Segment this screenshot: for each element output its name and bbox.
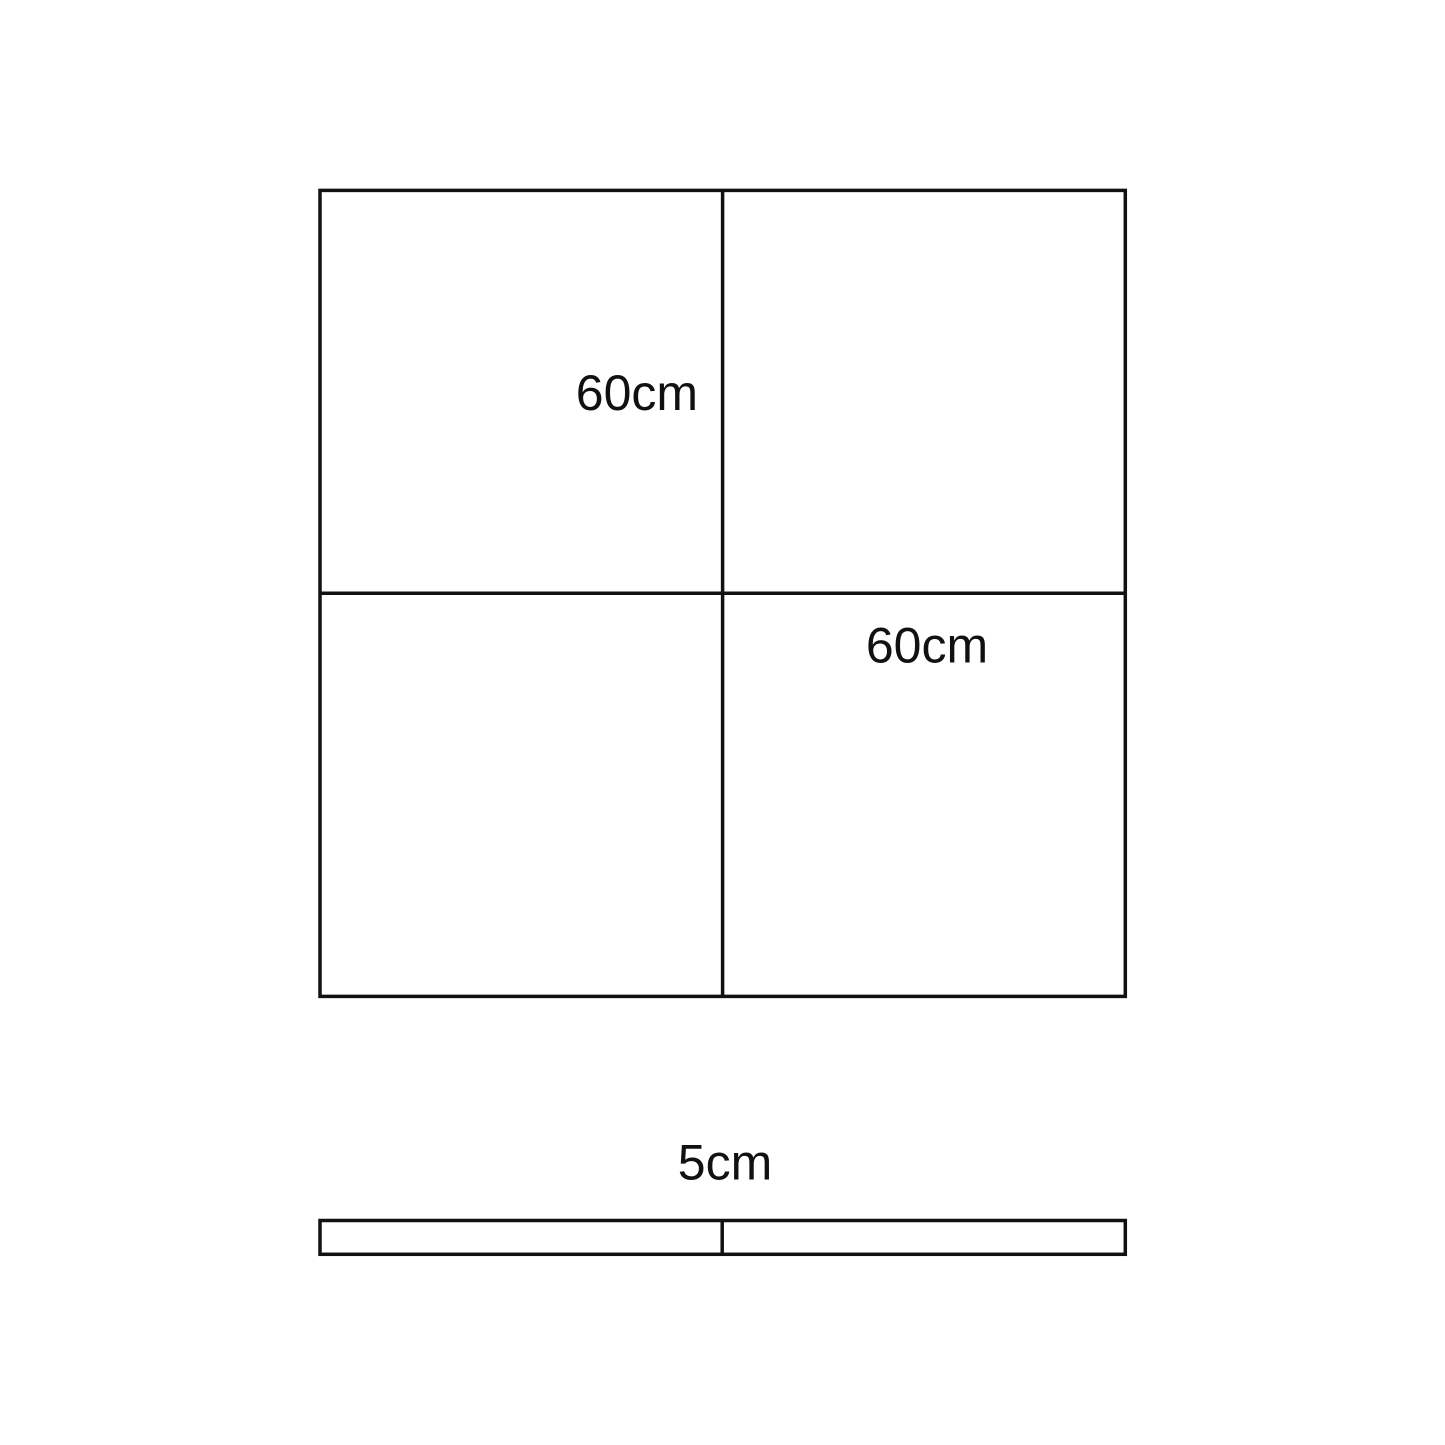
svg-text:60cm: 60cm (866, 618, 988, 674)
svg-text:60cm: 60cm (576, 365, 698, 421)
svg-text:5cm: 5cm (678, 1135, 772, 1191)
